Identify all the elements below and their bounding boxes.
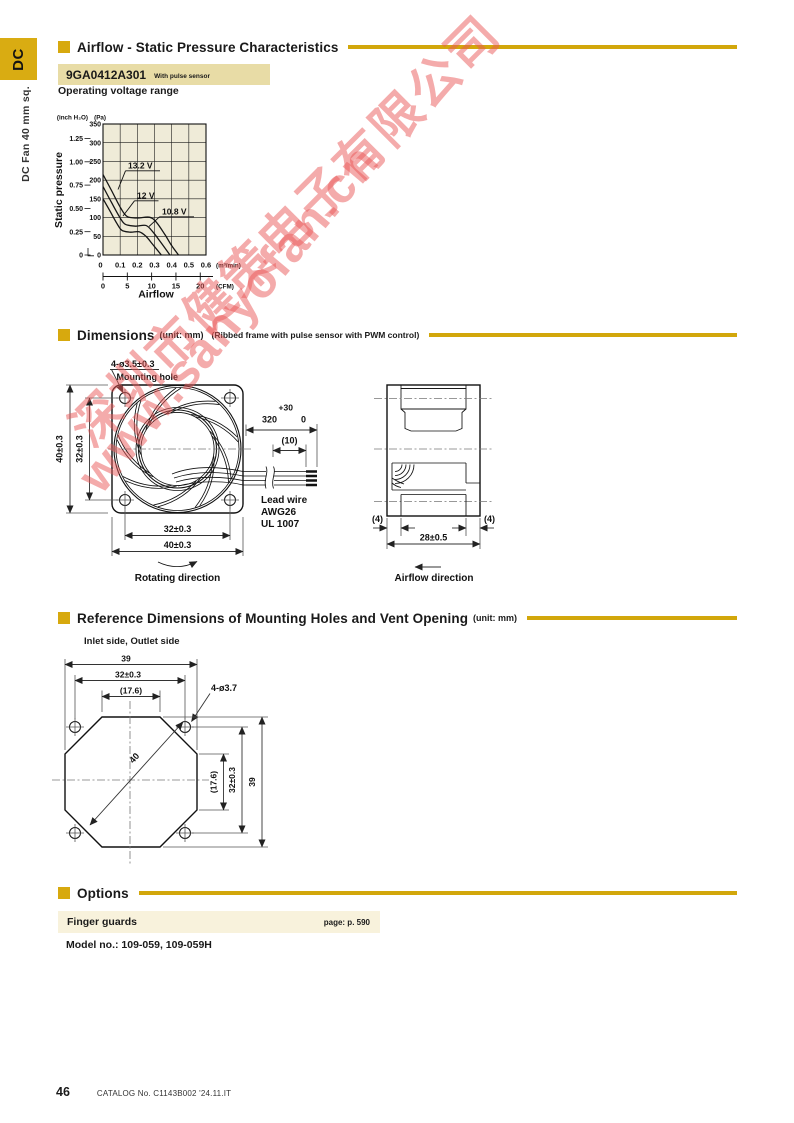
svg-text:300: 300 [89, 140, 101, 147]
svg-text:5: 5 [125, 282, 129, 291]
section-reference-unit: (unit: mm) [473, 613, 517, 623]
sidebar-vertical-label: DC Fan 40 mm sq. [20, 86, 32, 182]
section-dimensions-header: Dimensions (unit: mm) (Ribbed frame with… [58, 328, 737, 342]
svg-text:0.1: 0.1 [115, 261, 125, 270]
section-airflow-title: Airflow - Static Pressure Characteristic… [77, 40, 338, 55]
svg-text:0.6: 0.6 [201, 261, 211, 270]
airflow-direction-label: Airflow direction [395, 573, 474, 584]
airflow-static-pressure-chart: 3503002502001501005001.251.000.750.500.2… [40, 106, 302, 318]
gold-rule [348, 45, 737, 49]
side-flange-left: (4) [372, 514, 383, 524]
lead-strip-length: (10) [281, 436, 297, 446]
front-dim-height-inner: 32±0.3 [75, 435, 85, 462]
svg-text:1.00: 1.00 [69, 159, 83, 166]
lead-length-tol-zero: 0 [301, 415, 306, 425]
svg-text:0.2: 0.2 [132, 261, 142, 270]
section-reference-header: Reference Dimensions of Mounting Holes a… [58, 611, 737, 625]
svg-text:250: 250 [89, 159, 101, 166]
svg-text:(inch H₂O): (inch H₂O) [57, 115, 88, 122]
gold-rule [139, 891, 737, 895]
svg-text:(Pa): (Pa) [94, 115, 106, 122]
svg-text:200: 200 [89, 178, 101, 185]
lead-length-tol-plus: +30 [279, 403, 294, 413]
section-bullet-icon [58, 612, 70, 624]
svg-text:0.5: 0.5 [184, 261, 194, 270]
options-bar: Finger guards page: p. 590 [58, 911, 380, 933]
dimension-drawings: 4-ø3.5±0.3 Mounting hole 40±0.3 32±0.3 3… [40, 355, 510, 605]
vent-diagonal-dim: 40 [127, 751, 141, 765]
svg-text:Static pressure: Static pressure [53, 152, 65, 228]
section-bullet-icon [58, 329, 70, 341]
fan-blades [117, 388, 238, 507]
options-item-name: Finger guards [67, 916, 137, 928]
height-right-dim: 39 [247, 777, 257, 787]
model-bar: 9GA0412A301 With pulse sensor [58, 64, 270, 85]
lead-length: 320 [262, 415, 277, 425]
lead-wire-drawing: +30 320 0 (10) Lead wire AWG26 UL 1007 [243, 403, 317, 531]
section-dimensions-title: Dimensions [77, 328, 155, 343]
svg-text:0.50: 0.50 [69, 206, 83, 213]
svg-text:Airflow: Airflow [138, 289, 174, 301]
catalog-number: CATALOG No. C1143B002 '24.11.IT [97, 1089, 231, 1098]
svg-text:0: 0 [97, 253, 101, 260]
section-bullet-icon [58, 41, 70, 53]
front-hole-note2: Mounting hole [117, 372, 178, 382]
vent-opening-drawing: 40 (17.6) 32±0.3 39 4-ø3.7 (17.6) 32±0.3… [40, 648, 290, 878]
svg-text:13.2 V: 13.2 V [128, 161, 153, 171]
vent-hole-note: 4-ø3.7 [211, 683, 237, 693]
section-airflow-header: Airflow - Static Pressure Characteristic… [58, 40, 737, 54]
svg-text:0: 0 [101, 282, 105, 291]
vent-right-dim: (17.6) [209, 771, 219, 793]
options-model-no: Model no.: 109-059, 109-059H [66, 939, 212, 951]
svg-text:150: 150 [89, 196, 101, 203]
side-view-drawing: (4) (4) 28±0.5 Airflow direction [372, 385, 495, 584]
catalog-page: DC DC Fan 40 mm sq. Airflow - Static Pre… [0, 0, 794, 1123]
svg-text:10.8 V: 10.8 V [162, 207, 187, 217]
front-dim-height-outer: 40±0.3 [55, 435, 65, 462]
svg-text:1.25: 1.25 [69, 136, 83, 143]
side-flange-right: (4) [484, 514, 495, 524]
svg-text:0.75: 0.75 [69, 183, 83, 190]
front-view-drawing: 4-ø3.5±0.3 Mounting hole 40±0.3 32±0.3 3… [55, 359, 253, 584]
front-dim-width-inner: 32±0.3 [164, 524, 191, 534]
section-options-title: Options [77, 886, 129, 901]
rotating-direction-label: Rotating direction [135, 573, 221, 584]
reference-caption: Inlet side, Outlet side [84, 636, 180, 647]
svg-text:0: 0 [79, 253, 83, 260]
pitch-top-dim: 32±0.3 [115, 670, 141, 680]
svg-text:0.4: 0.4 [166, 261, 177, 270]
sidebar-tab-label: DC [10, 48, 27, 71]
front-dim-width-outer: 40±0.3 [164, 540, 191, 550]
width-top-dim: 39 [121, 654, 131, 664]
svg-text:12 V: 12 V [137, 191, 155, 201]
section-dimensions-note: (Ribbed frame with pulse sensor with PWM… [212, 330, 420, 340]
gold-rule [429, 333, 737, 337]
vent-top-dim: (17.6) [120, 686, 142, 696]
pitch-right-dim: 32±0.3 [227, 767, 237, 793]
page-number: 46 [56, 1085, 70, 1099]
svg-text:(CFM): (CFM) [216, 284, 234, 291]
front-hole-note: 4-ø3.5±0.3 [111, 359, 154, 369]
options-page-ref: page: p. 590 [324, 918, 370, 927]
sidebar-tab-dc: DC [0, 38, 37, 80]
model-variant: With pulse sensor [154, 73, 210, 80]
svg-text:100: 100 [89, 215, 101, 222]
chart-title: Operating voltage range [58, 85, 179, 97]
section-reference-title: Reference Dimensions of Mounting Holes a… [77, 611, 468, 626]
svg-text:(m³/min): (m³/min) [216, 263, 241, 270]
svg-text:0.3: 0.3 [149, 261, 159, 270]
section-options-header: Options [58, 886, 737, 900]
lead-wire-label-2: AWG26 [261, 507, 296, 518]
section-bullet-icon [58, 887, 70, 899]
model-number: 9GA0412A301 [66, 68, 146, 82]
page-footer: 46 CATALOG No. C1143B002 '24.11.IT [56, 1085, 231, 1099]
section-dimensions-unit: (unit: mm) [160, 330, 204, 340]
lead-wire-label-1: Lead wire [261, 495, 308, 506]
side-depth-dim: 28±0.5 [420, 533, 447, 543]
lead-wire-label-3: UL 1007 [261, 519, 300, 530]
svg-text:20: 20 [196, 282, 204, 291]
svg-text:350: 350 [89, 122, 101, 129]
gold-rule [527, 616, 737, 620]
svg-text:0: 0 [98, 261, 102, 270]
svg-text:50: 50 [93, 234, 101, 241]
svg-text:0.25: 0.25 [69, 229, 83, 236]
